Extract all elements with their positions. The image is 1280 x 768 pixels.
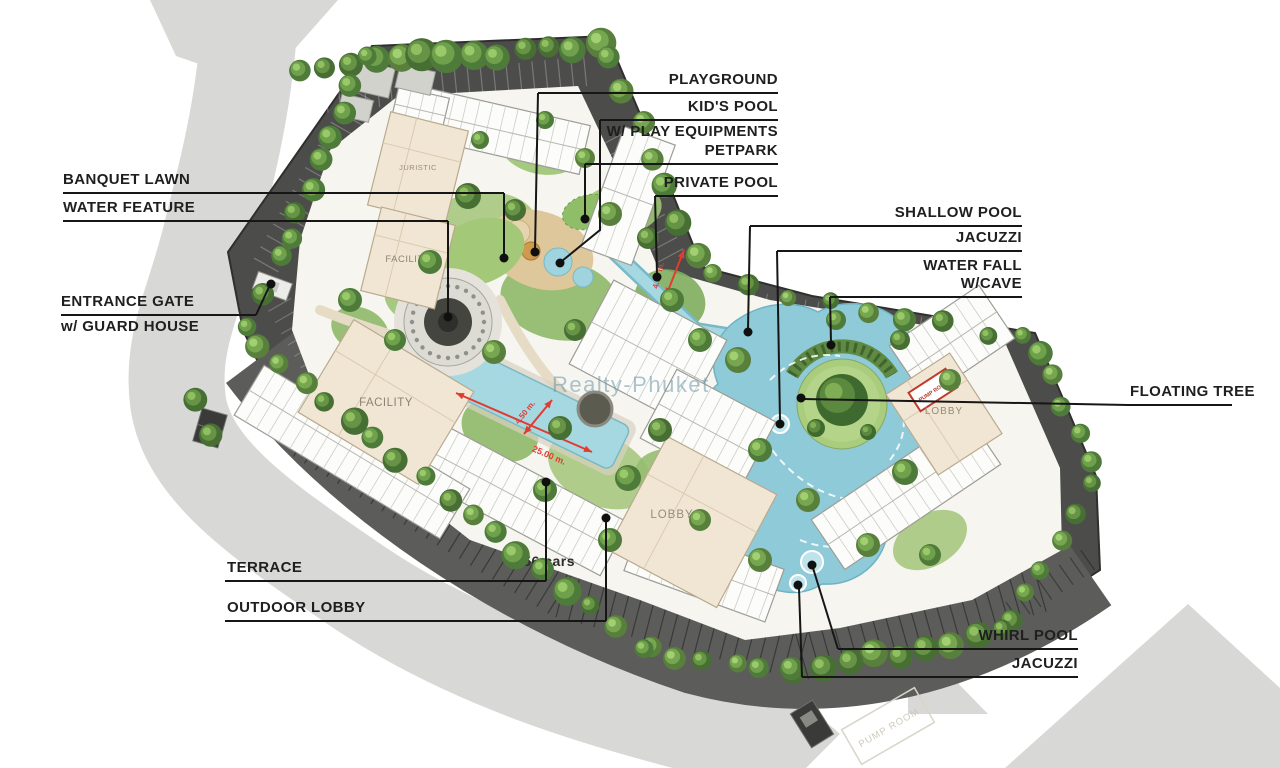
leader-dot [797, 394, 806, 403]
tree-icon [919, 544, 941, 566]
tree-icon [514, 38, 536, 60]
tree-icon [199, 423, 222, 446]
tree-icon [538, 36, 559, 57]
tree-icon [440, 489, 463, 512]
leader-dot [444, 313, 453, 322]
tree-icon [748, 438, 772, 462]
tree-icon [296, 372, 318, 394]
tree-icon [729, 654, 747, 672]
tree-icon [780, 290, 796, 306]
tree-icon [890, 330, 910, 350]
tree-icon [1051, 397, 1071, 417]
tree-icon [780, 657, 803, 680]
tree-icon [1014, 327, 1031, 344]
tree-icon [663, 647, 686, 670]
tree-icon [652, 173, 677, 198]
tree-icon [1052, 531, 1072, 551]
tree-icon [665, 209, 692, 236]
tree-icon [430, 40, 463, 73]
tree-icon [302, 178, 325, 201]
tree-icon [748, 548, 772, 572]
tree-icon [1081, 451, 1102, 472]
facility-lower-label: FACILITY [359, 397, 413, 409]
tree-icon [826, 310, 846, 330]
tree-icon [482, 340, 506, 364]
tree-icon [559, 37, 586, 64]
leader-dot [581, 215, 590, 224]
tree-icon [553, 577, 582, 606]
tree-icon [245, 334, 269, 358]
tree-icon [581, 596, 600, 615]
tree-icon [660, 288, 684, 312]
tree-icon [748, 658, 769, 679]
tree-icon [725, 347, 751, 373]
tree-icon [688, 328, 712, 352]
tree-icon [598, 202, 622, 226]
tree-icon [689, 509, 711, 531]
tree-icon [238, 318, 257, 337]
kids-pool [573, 267, 593, 287]
tree-icon [604, 615, 627, 638]
tree-icon [703, 264, 722, 283]
leader-dot [542, 478, 551, 487]
tree-icon [807, 419, 825, 437]
leader-dot [556, 259, 565, 268]
leader-dot [776, 420, 785, 429]
tree-icon [1028, 341, 1053, 366]
leader-dot [267, 280, 276, 289]
tree-icon [384, 329, 406, 351]
tree-icon [484, 44, 510, 70]
tree-icon [183, 388, 207, 412]
tree-icon [838, 649, 864, 675]
watermark: Realty-Phuket [552, 372, 710, 398]
tree-icon [471, 131, 489, 149]
tree-icon [979, 327, 997, 345]
tree-icon [536, 111, 554, 129]
tree-icon [333, 102, 356, 125]
tree-icon [609, 79, 634, 104]
tree-icon [455, 183, 481, 209]
tree-icon [615, 465, 641, 491]
tree-icon [418, 250, 442, 274]
leader-dot [602, 514, 611, 523]
tree-icon [531, 558, 554, 581]
tree-icon [892, 459, 918, 485]
tree-icon [858, 302, 879, 323]
site-plan: PUMP ROOMJURISTICFACILITYFACILITYLOBBYLO… [0, 0, 1280, 768]
tree-icon [269, 354, 288, 373]
tree-icon [634, 639, 653, 658]
tree-icon [860, 424, 876, 440]
tree-icon [485, 521, 507, 543]
tree-icon [310, 148, 333, 171]
tree-icon [686, 243, 711, 268]
pump-room-ghost-label: PUMP ROOM [857, 706, 922, 750]
lobby-central-label: LOBBY [650, 509, 693, 521]
tree-icon [937, 632, 964, 659]
tree-icon [633, 111, 655, 133]
tree-icon [796, 488, 820, 512]
tree-icon [1083, 474, 1101, 492]
tree-icon [893, 308, 916, 331]
leader-dot [827, 341, 836, 350]
lobby-east-label: LOBBY [925, 406, 963, 417]
tree-icon [1016, 583, 1034, 601]
tree-icon [341, 407, 368, 434]
leader-dot [794, 581, 803, 590]
tree-icon [282, 228, 302, 248]
tree-icon [1071, 424, 1090, 443]
leader-dot [744, 328, 753, 337]
leader-dot [653, 273, 662, 282]
leader-dot [531, 248, 540, 257]
tree-icon [504, 199, 526, 221]
tree-icon [597, 46, 620, 69]
tree-icon [502, 541, 530, 569]
leader-dot [500, 254, 509, 263]
tree-icon [692, 650, 712, 670]
tree-icon [289, 60, 311, 82]
tree-icon [856, 533, 880, 557]
tree-icon [1030, 561, 1049, 580]
leader-dot [808, 561, 817, 570]
tree-icon [383, 448, 408, 473]
juristic-label: JURISTIC [399, 163, 437, 172]
tree-icon [271, 245, 292, 266]
tree-icon [358, 47, 377, 66]
tree-icon [463, 505, 484, 526]
tree-icon [564, 319, 586, 341]
tree-icon [939, 369, 961, 391]
tree-icon [598, 528, 622, 552]
tree-icon [339, 74, 362, 97]
tree-icon [860, 639, 888, 667]
tree-icon [338, 288, 362, 312]
tree-icon [548, 416, 572, 440]
tree-icon [314, 392, 334, 412]
tree-icon [641, 148, 664, 171]
tree-icon [416, 467, 435, 486]
tree-icon [314, 57, 335, 78]
tree-icon [932, 310, 954, 332]
tree-icon [965, 622, 992, 649]
tree-icon [318, 126, 342, 150]
tree-icon [1042, 364, 1062, 384]
tree-icon [648, 418, 672, 442]
tree-icon [1065, 504, 1086, 525]
tree-icon [993, 620, 1012, 639]
